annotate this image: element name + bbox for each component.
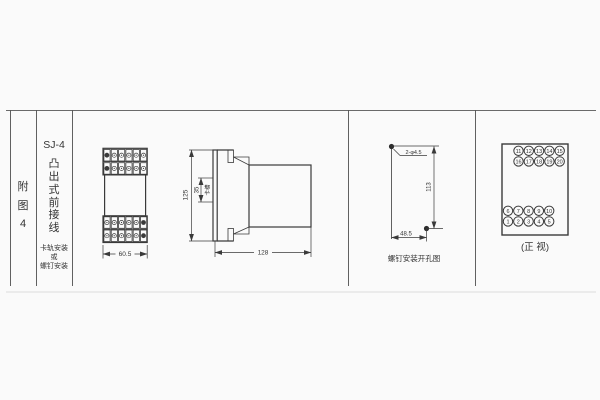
terminal-view-caption: (正 视) bbox=[521, 241, 549, 253]
terminal-number: 13 bbox=[536, 149, 542, 155]
side-view-bottom-bevel bbox=[234, 227, 250, 234]
drill-view-caption: 螺钉安装开孔图 bbox=[388, 253, 441, 263]
terminal-screw-dot bbox=[121, 235, 122, 236]
slot-dim: 35 bbox=[195, 186, 201, 193]
terminal-number: 15 bbox=[557, 149, 563, 155]
drill-height-dim: 113 bbox=[427, 182, 433, 192]
terminal-number: 2 bbox=[517, 220, 520, 226]
terminal-screw-dot bbox=[114, 235, 115, 236]
front-view-body bbox=[105, 175, 146, 216]
terminal-number: 11 bbox=[516, 149, 522, 155]
side-height-dim: 125 bbox=[183, 189, 190, 200]
title-char-3: 式 bbox=[49, 183, 60, 196]
terminal-number: 5 bbox=[548, 220, 551, 226]
technical-drawing-sheet: 附 图 4 SJ-4 凸 出 式 前 接 线 卡轨安装 或 螺钉安装 bbox=[0, 0, 600, 400]
mount-line-3: 螺钉安装 bbox=[40, 261, 68, 270]
terminal-number: 18 bbox=[536, 160, 542, 166]
mount-line-2: 或 bbox=[51, 252, 58, 261]
side-view-top-bevel bbox=[234, 157, 250, 165]
terminal-number: 14 bbox=[546, 149, 552, 155]
side-view: 125 35 卡槽 128 bbox=[183, 150, 312, 257]
figure-char-3: 4 bbox=[20, 218, 26, 230]
title-column: SJ-4 凸 出 式 前 接 线 卡轨安装 或 螺钉安装 bbox=[40, 139, 68, 270]
side-view-case-body bbox=[249, 165, 311, 227]
terminal-number: 7 bbox=[517, 209, 520, 215]
side-view-bottom-clip bbox=[228, 229, 234, 242]
title-char-4: 前 bbox=[49, 195, 60, 209]
side-length-dim: 128 bbox=[258, 249, 269, 256]
model-label: SJ-4 bbox=[43, 139, 65, 151]
terminal-screw-dot bbox=[136, 235, 137, 236]
slot-label: 卡槽 bbox=[204, 184, 212, 196]
terminal-number: 4 bbox=[537, 220, 540, 226]
hole-spec-label: 2-φ4.5 bbox=[405, 150, 421, 156]
terminal-number: 10 bbox=[546, 209, 552, 215]
terminal-screw-dot bbox=[114, 222, 115, 223]
figure-char-2: 图 bbox=[18, 199, 29, 212]
terminal-view-outline bbox=[502, 144, 568, 235]
title-vertical-text: 凸 出 式 前 接 线 bbox=[49, 158, 60, 234]
terminal-screw-dot bbox=[121, 168, 122, 169]
terminal-screw-dot bbox=[121, 222, 122, 223]
terminal-screw-dot bbox=[106, 222, 107, 223]
terminal-screw-dot bbox=[128, 222, 129, 223]
mount-type-note: 卡轨安装 或 螺钉安装 bbox=[40, 243, 68, 270]
terminal-screw-filled bbox=[105, 153, 110, 158]
drill-hole-top bbox=[389, 144, 394, 149]
terminal-screw-dot bbox=[136, 168, 137, 169]
terminal-screw-dot bbox=[114, 168, 115, 169]
terminal-screw-dot bbox=[114, 155, 115, 156]
drill-view: 2-φ4.5 113 48.5 螺钉安装开孔图 bbox=[388, 144, 443, 263]
front-view-terminals bbox=[104, 150, 147, 242]
terminal-number: 20 bbox=[557, 160, 563, 166]
terminal-number: 9 bbox=[537, 209, 540, 215]
terminal-screw-filled bbox=[105, 166, 110, 171]
terminal-screw-dot bbox=[106, 235, 107, 236]
terminal-screw-dot bbox=[128, 235, 129, 236]
drill-width-dim: 48.5 bbox=[400, 232, 412, 238]
front-view: 60.5 bbox=[103, 148, 147, 258]
terminal-screw-dot bbox=[136, 222, 137, 223]
terminal-view: 1112131415161718192067891012345 (正 视) bbox=[502, 144, 568, 253]
terminal-screw-dot bbox=[121, 155, 122, 156]
title-char-5: 接 bbox=[49, 208, 60, 221]
hole-leader-line bbox=[394, 149, 401, 156]
title-char-2: 出 bbox=[49, 169, 60, 183]
terminal-number: 8 bbox=[527, 209, 530, 215]
terminal-number: 3 bbox=[527, 220, 530, 226]
sheet-frame bbox=[6, 111, 596, 293]
terminal-number: 19 bbox=[546, 160, 552, 166]
title-char-1: 凸 bbox=[49, 158, 60, 170]
terminal-screw-dot bbox=[128, 168, 129, 169]
figure-number-column: 附 图 4 bbox=[18, 179, 29, 230]
mount-line-1: 卡轨安装 bbox=[40, 243, 68, 252]
terminal-number: 12 bbox=[526, 149, 532, 155]
terminal-screw-filled bbox=[141, 233, 146, 238]
figure-char-1: 附 bbox=[18, 179, 29, 193]
side-view-flange bbox=[213, 150, 217, 241]
terminal-number: 6 bbox=[506, 209, 509, 215]
terminal-screw-dot bbox=[143, 155, 144, 156]
terminal-number: 1 bbox=[506, 220, 509, 226]
terminal-screw-dot bbox=[143, 168, 144, 169]
front-width-dim: 60.5 bbox=[119, 251, 132, 258]
terminal-number: 17 bbox=[526, 160, 532, 166]
terminal-screw-dot bbox=[136, 155, 137, 156]
terminal-screw-filled bbox=[141, 220, 146, 225]
title-char-6: 线 bbox=[49, 220, 60, 234]
terminal-circles: 1112131415161718192067891012345 bbox=[503, 146, 564, 226]
terminal-screw-dot bbox=[128, 155, 129, 156]
side-view-top-clip bbox=[228, 150, 234, 163]
terminal-number: 16 bbox=[515, 160, 521, 166]
